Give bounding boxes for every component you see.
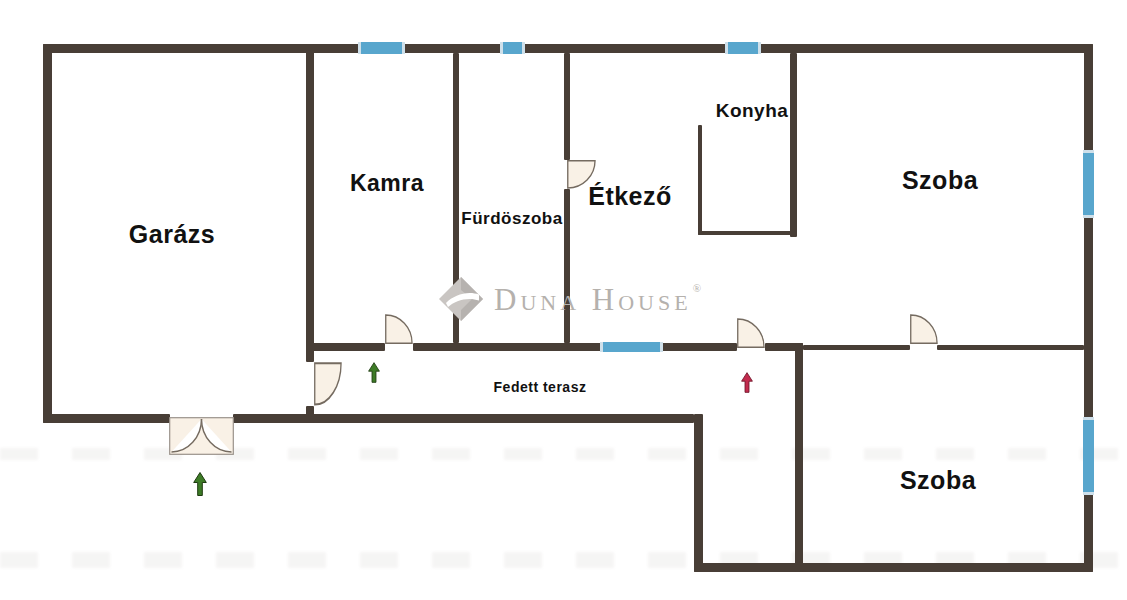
partition-szoba-2 (937, 345, 1084, 350)
partition-konyha-horizontal (698, 231, 797, 235)
window-szoba-also-east (1083, 417, 1094, 495)
window-szoba-felso-east (1083, 150, 1094, 218)
szoba-connecting-door (910, 314, 938, 344)
room-label-szoba-felso: Szoba (902, 166, 978, 195)
floor-plan-canvas: Garázs Kamra Fürdöszoba Étkező Konyha Sz… (0, 0, 1127, 600)
wall-north (43, 44, 1093, 53)
kamra-door (385, 314, 413, 344)
main-entrance-door (737, 318, 765, 348)
room-label-szoba-also: Szoba (900, 466, 976, 495)
partition-konyha-vertical (698, 125, 702, 235)
window-fedett-terasz (600, 342, 663, 352)
window-furdoszoba-north (500, 42, 525, 54)
garazs-terasz-door (314, 362, 342, 406)
wall-kamra-south-1 (306, 343, 385, 351)
wall-south-terasz (233, 414, 694, 423)
wall-terasz-north (413, 343, 737, 351)
room-label-garazs: Garázs (129, 220, 215, 249)
wall-west (43, 44, 52, 423)
wall-szoba-also-west (795, 343, 803, 572)
main-entrance-arrow (741, 372, 753, 393)
wall-garazs-kamra-divider (306, 44, 314, 362)
garazs-gate (169, 417, 234, 455)
room-label-etkezo: Étkező (588, 182, 672, 211)
watermark-brand-text: Duna House (494, 284, 692, 315)
wall-furdoszoba-etkezo-divider-a (564, 53, 570, 160)
wall-south-szoba (694, 563, 1093, 572)
window-konyha-north (725, 42, 761, 54)
room-label-fedett-terasz: Fedett terasz (494, 379, 587, 395)
watermark: Duna House ® (438, 276, 700, 322)
wall-south-garazs-left (43, 414, 170, 423)
room-label-kamra: Kamra (350, 170, 424, 197)
room-label-furdoszoba: Fürdöszoba (461, 209, 562, 229)
wall-etkezo-szoba-divider (790, 53, 797, 237)
registered-trademark-icon: ® (693, 282, 701, 294)
wall-notch-vertical (694, 414, 703, 572)
garazs-entrance-arrow (193, 472, 207, 496)
duna-house-diamond-logo-icon (438, 276, 484, 322)
window-kamra-north (358, 42, 405, 54)
partition-szoba-1 (803, 345, 910, 350)
room-label-konyha: Konyha (716, 100, 789, 122)
wall-garazs-divider-stub (306, 406, 314, 423)
terasz-kamra-entrance-arrow (368, 362, 380, 383)
